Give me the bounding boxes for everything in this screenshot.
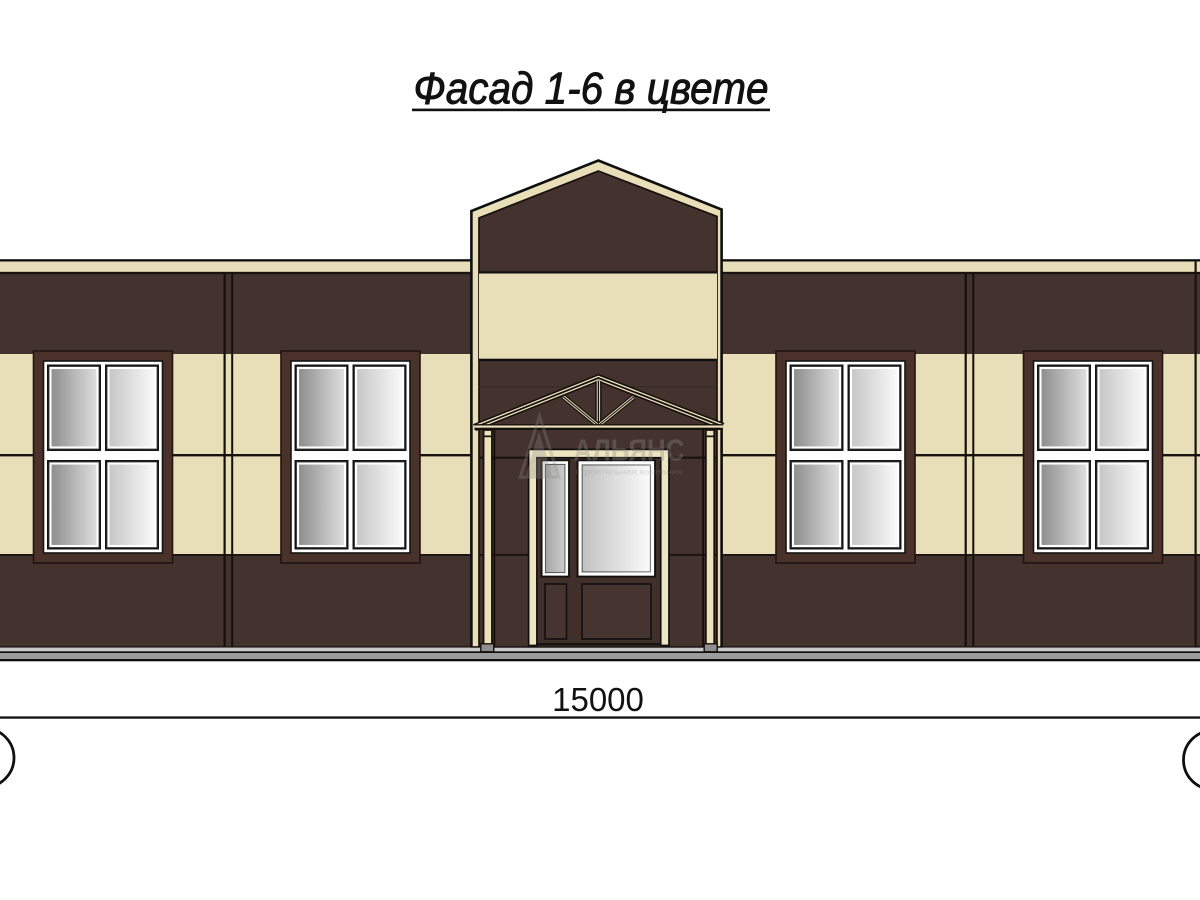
svg-text:АЛЬЯНС: АЛЬЯНС [574, 434, 685, 468]
svg-text:15000: 15000 [552, 681, 644, 718]
svg-text:Фасад 1-6 в цвете: Фасад 1-6 в цвете [414, 65, 769, 114]
svg-text:строительная компания: строительная компания [576, 467, 683, 477]
